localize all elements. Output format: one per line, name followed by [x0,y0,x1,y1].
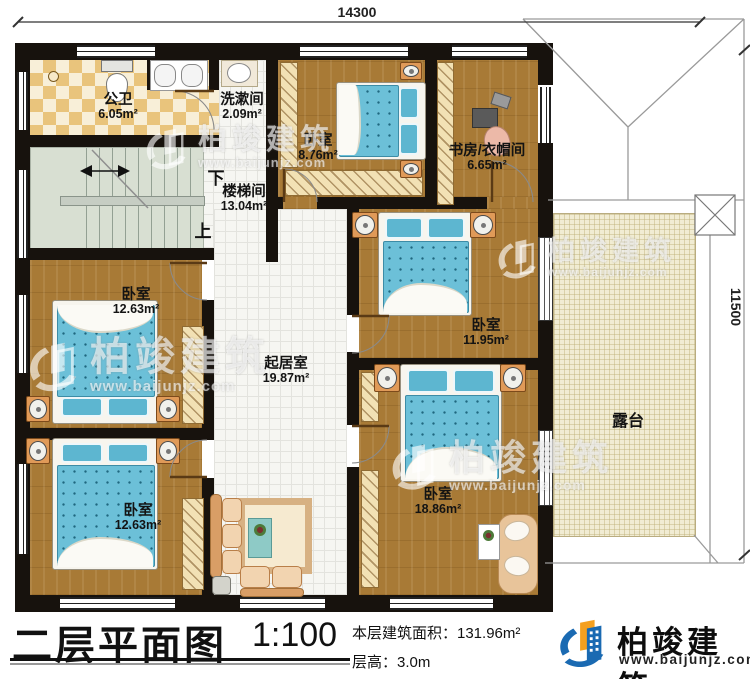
study-doorway [487,197,538,209]
stairs-up-label: 上 [195,217,212,242]
lamp [29,441,47,461]
sofa-seat [272,566,302,588]
window [240,597,325,610]
sofa-seat [222,498,242,522]
window [60,597,175,610]
lamp [355,215,375,235]
nightstand [470,212,496,238]
bed [378,212,472,316]
nightstand [352,212,378,238]
wall [347,352,359,425]
nightstand [400,160,422,178]
stairs-down-label: 下 [208,164,225,189]
brand-logo-icon [552,615,614,673]
brand-name: 柏竣建筑 [617,617,750,679]
nightstand [400,62,422,80]
lamp [473,215,493,235]
wall [317,197,487,209]
window [17,72,28,130]
bed [400,364,502,482]
roof-column [695,195,735,235]
lamp [403,163,419,175]
floorplan-canvas: 14300 11500 公卫6.05m² 洗漱间2.09m² 卧室8.76m² … [0,0,750,679]
computer-monitor [472,108,498,128]
room-label-bedroom-bottomleft: 卧室12.63m² [115,503,162,533]
nightstand [374,364,400,392]
wardrobe [280,62,298,168]
wall [538,143,553,237]
wardrobe [182,326,204,424]
nightstand [26,438,50,464]
dimension-right: 11500 [728,288,744,326]
room-label-living: 起居室19.87m² [263,356,310,386]
sofa-seat [240,566,270,588]
wall [266,60,278,262]
washroom-sink [227,63,251,83]
stair-treads-upper [86,148,202,196]
wall [538,506,553,595]
lamp [403,65,419,77]
floor-height-text: 层高：3.0m [352,651,430,672]
wall [278,197,283,209]
bed [52,300,158,424]
wardrobe [182,498,204,590]
nightstand [156,396,180,422]
terrace-floor [553,213,696,537]
flowers [483,530,494,541]
terrace-sliding-door [538,237,553,321]
title-underline [10,658,350,665]
nightstand [500,364,526,392]
sink-basin [154,64,176,87]
wardrobe [437,62,454,205]
sofa-seat [222,524,242,548]
lamp [503,367,523,389]
room-label-bedroom-midright: 卧室11.95m² [463,318,509,348]
wall [209,60,219,90]
side-table [212,576,231,595]
window [390,597,493,610]
bathroom-doorway-floor [209,90,219,135]
floor-drain [48,71,59,82]
floor-area-text: 本层建筑面积：131.96m² [352,622,520,643]
room-label-stairwell: 楼梯间13.04m² [221,184,268,214]
sofa-back [210,494,222,578]
sofa-back [240,588,304,597]
wall [347,467,359,595]
room-label-bedroom-master: 卧室18.86m² [415,487,462,517]
wall [538,60,553,85]
wall [15,248,214,260]
terrace-sliding-door [538,430,553,506]
lamp [29,399,47,419]
sink-basin [181,64,203,87]
nightstand [156,438,180,464]
stair-treads-lower [86,205,202,248]
wardrobe [361,470,379,588]
nightstand [26,396,50,422]
room-label-bedroom-top: 卧室8.76m² [298,133,338,163]
room-label-washroom: 洗漱间2.09m² [220,92,264,122]
toilet-tank [101,60,133,72]
sofa-seat [222,550,242,574]
window [17,295,28,373]
wall [15,135,219,147]
bedroom-top-doorway [283,197,317,209]
window [17,170,28,258]
window [300,45,408,58]
stair-landing-rail [60,196,205,206]
dimension-top: 14300 [338,4,377,20]
window [540,87,551,143]
lamp [377,367,397,389]
bed [336,82,426,160]
drawing-scale: 1:100 [252,616,337,655]
room-label-study: 书房/衣帽间6.65m² [449,143,526,173]
wall [425,60,437,197]
plant [254,524,266,536]
lamp [159,441,177,461]
room-label-terrace: 露台 [612,413,644,431]
room-label-bedroom-midleft: 卧室12.63m² [113,287,160,317]
lamp [159,399,177,419]
room-label-bathroom: 公卫6.05m² [98,92,138,122]
window [77,45,155,58]
window [452,45,527,58]
window [17,464,28,554]
wall [538,321,553,430]
brand-url: www.baijunjz.com [619,652,750,667]
